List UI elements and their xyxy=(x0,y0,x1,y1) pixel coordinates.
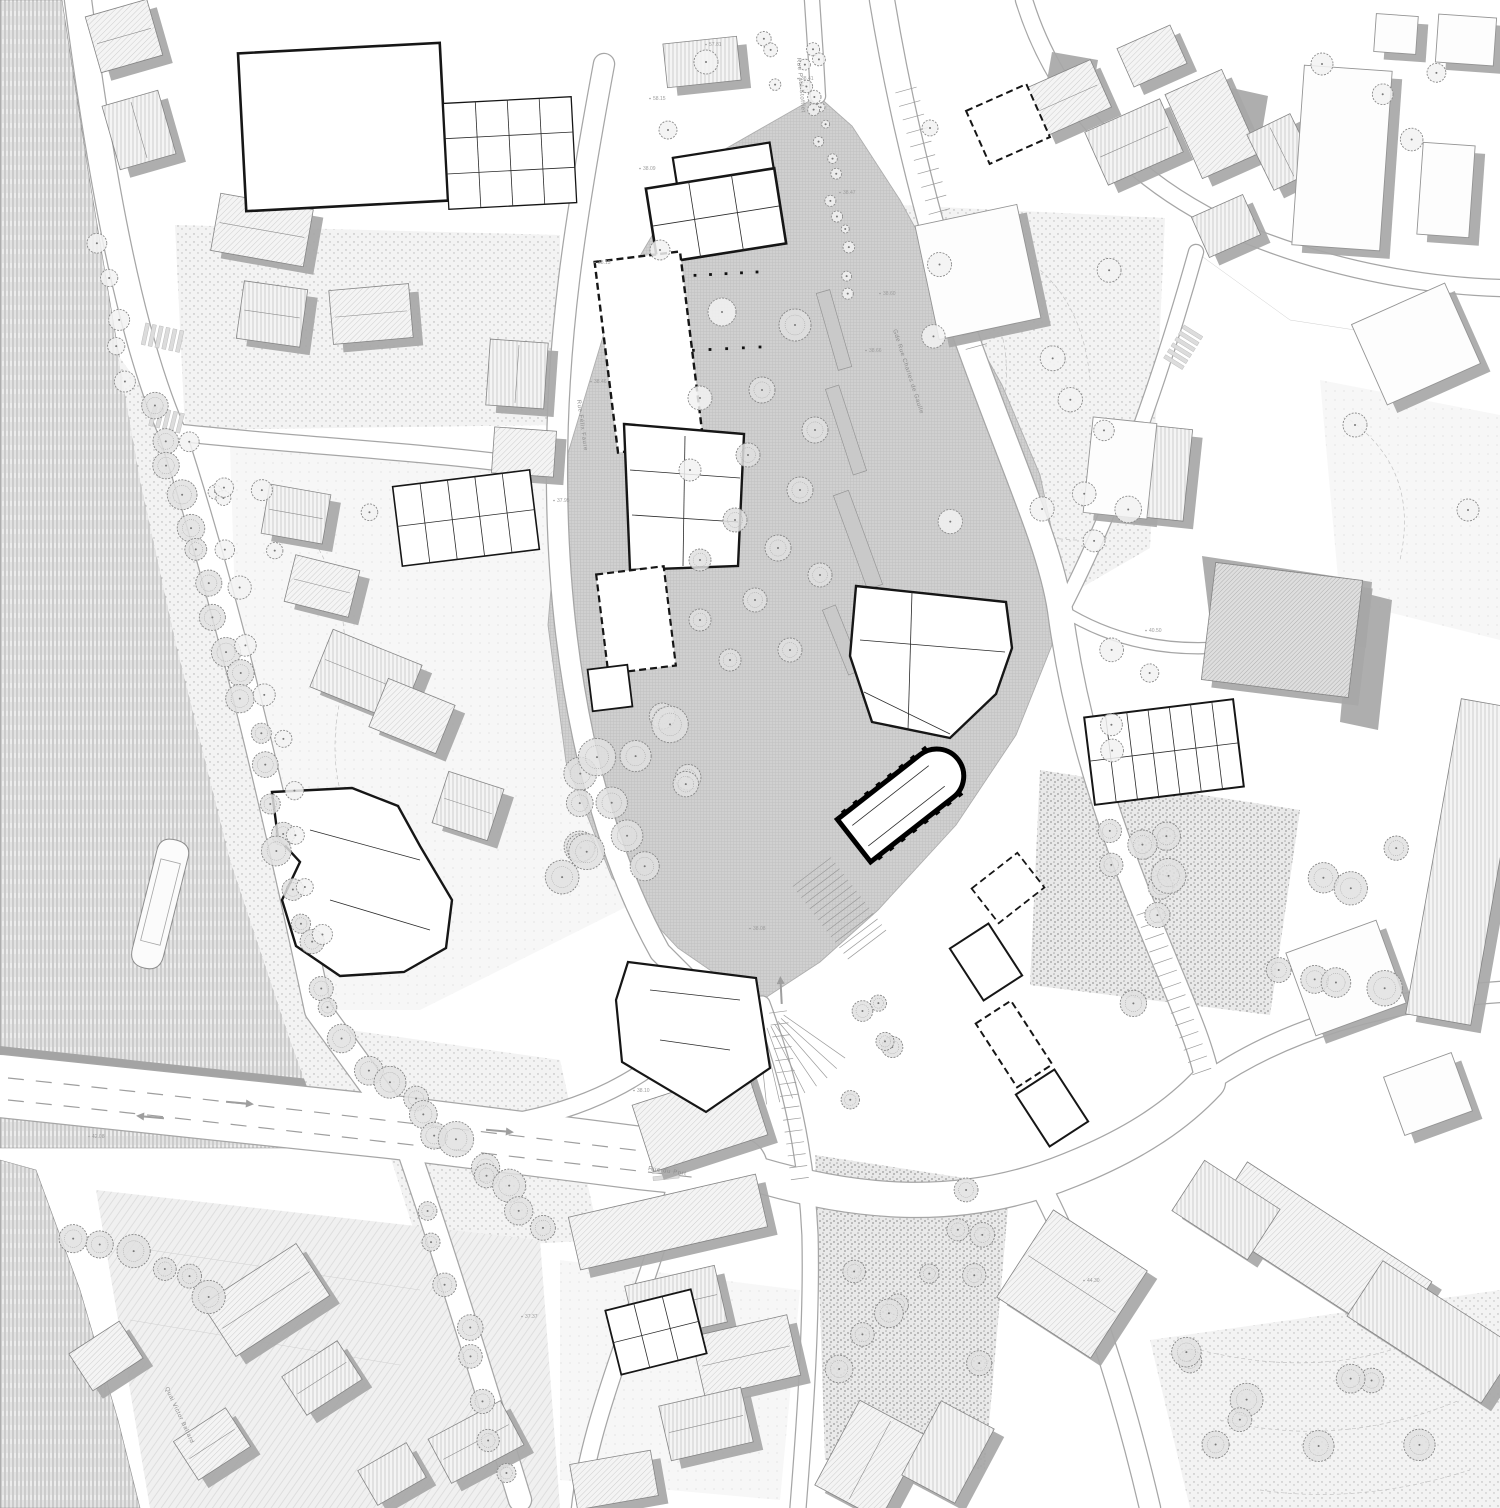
tree-trunk xyxy=(1418,1444,1420,1446)
tree-trunk xyxy=(838,1368,840,1370)
tree-trunk xyxy=(932,335,934,337)
project-building-plan xyxy=(596,566,676,674)
column-dot xyxy=(742,346,745,349)
tree-trunk xyxy=(224,549,226,551)
spot-elevation-point xyxy=(633,1090,635,1092)
tree-trunk xyxy=(820,106,822,108)
tree-trunk xyxy=(389,1081,391,1083)
tree xyxy=(673,771,698,796)
column-dot xyxy=(756,271,759,274)
tree-trunk xyxy=(269,803,271,805)
tree xyxy=(749,377,775,403)
tree xyxy=(1266,958,1291,983)
spot-elevation-point xyxy=(521,1316,523,1318)
tree-trunk xyxy=(518,1210,520,1212)
tree-trunk xyxy=(292,889,294,891)
tree-trunk xyxy=(368,511,370,513)
tree xyxy=(954,1178,978,1202)
tree-trunk xyxy=(721,311,723,313)
tree-trunk xyxy=(189,1275,191,1277)
tree-trunk xyxy=(1278,969,1280,971)
tree xyxy=(361,504,378,521)
context-building xyxy=(1201,562,1362,697)
tree-trunk xyxy=(794,324,796,326)
tree xyxy=(179,432,199,452)
tree xyxy=(679,459,701,481)
tree xyxy=(199,604,225,630)
tree-trunk xyxy=(1321,63,1323,65)
column-dot xyxy=(694,274,697,277)
tree-trunk xyxy=(1111,749,1113,751)
tree xyxy=(736,443,760,467)
tree-trunk xyxy=(819,574,821,576)
tree-trunk xyxy=(341,1038,343,1040)
tree-trunk xyxy=(1322,877,1324,879)
tree xyxy=(1115,496,1142,523)
tree-trunk xyxy=(689,469,691,471)
tree-trunk xyxy=(188,441,190,443)
tree xyxy=(652,706,688,742)
tree-trunk xyxy=(799,489,801,491)
tree-trunk xyxy=(154,405,156,407)
tree xyxy=(596,787,627,818)
tree-trunk xyxy=(481,1400,483,1402)
tree-trunk xyxy=(965,1189,967,1191)
tree-trunk xyxy=(164,1268,166,1270)
tree xyxy=(260,794,280,814)
spot-elevation-point xyxy=(639,168,641,170)
tree xyxy=(566,790,593,817)
tree xyxy=(153,429,179,455)
tree xyxy=(545,860,579,894)
tree-trunk xyxy=(699,397,701,399)
tree-trunk xyxy=(1165,835,1167,837)
tree xyxy=(177,514,205,542)
spot-elevation-label: 38.46 xyxy=(594,379,607,385)
tree-trunk xyxy=(1108,269,1110,271)
tree xyxy=(688,386,712,410)
tree-trunk xyxy=(1395,847,1397,849)
spot-elevation-label: 38.09 xyxy=(643,166,656,172)
tree-trunk xyxy=(433,1135,435,1137)
tree xyxy=(947,1219,969,1241)
column-dot xyxy=(740,271,743,274)
tree-trunk xyxy=(705,61,707,63)
tree-trunk xyxy=(877,1002,879,1004)
site-plan-page: Rue Paul StoffletRue Félix FaureGde Rue … xyxy=(0,0,1500,1508)
tree-trunk xyxy=(1141,844,1143,846)
tree-trunk xyxy=(282,738,284,740)
tree xyxy=(114,371,135,392)
tree-trunk xyxy=(939,264,941,266)
tree-trunk xyxy=(774,84,776,86)
tree-trunk xyxy=(611,802,613,804)
tree-trunk xyxy=(427,1210,429,1212)
tree-trunk xyxy=(1384,987,1386,989)
spot-elevation-point xyxy=(879,293,881,295)
tree-trunk xyxy=(486,1175,488,1177)
tree-trunk xyxy=(1318,1445,1320,1447)
spot-elevation-label: 38.08 xyxy=(753,926,766,932)
tree-trunk xyxy=(96,242,98,244)
spot-elevation-point xyxy=(797,78,799,80)
tree xyxy=(1343,413,1367,437)
tree xyxy=(252,752,278,778)
spot-elevation-point xyxy=(649,98,651,100)
tree xyxy=(228,576,251,599)
tree-trunk xyxy=(973,1274,975,1276)
tree-trunk xyxy=(754,599,756,601)
tree-trunk xyxy=(260,732,262,734)
tree xyxy=(251,480,272,501)
tree-trunk xyxy=(1239,1419,1241,1421)
tree xyxy=(1372,84,1393,105)
tree-trunk xyxy=(1110,724,1112,726)
tree xyxy=(689,549,711,571)
tree-trunk xyxy=(368,1070,370,1072)
tree xyxy=(470,1389,494,1413)
tree-trunk xyxy=(644,865,646,867)
tree-trunk xyxy=(1350,887,1352,889)
column-dot xyxy=(759,346,762,349)
tree-trunk xyxy=(1350,1378,1352,1380)
project-building-plan xyxy=(588,665,633,712)
tree-trunk xyxy=(861,1010,863,1012)
tree xyxy=(1145,903,1170,928)
tree-trunk xyxy=(928,1273,930,1275)
tree-trunk xyxy=(848,246,850,248)
tree-trunk xyxy=(770,49,772,51)
tree-trunk xyxy=(1335,982,1337,984)
tree-trunk xyxy=(835,173,837,175)
tree xyxy=(1100,638,1124,662)
tree-trunk xyxy=(1246,1399,1248,1401)
tree xyxy=(318,998,337,1017)
tree xyxy=(825,195,836,206)
tree xyxy=(828,154,838,164)
tree-trunk xyxy=(836,216,838,218)
tree-trunk xyxy=(844,228,846,230)
tree-trunk xyxy=(699,619,701,621)
tree-trunk xyxy=(1156,914,1158,916)
tree xyxy=(1058,388,1082,412)
tree-trunk xyxy=(805,86,807,88)
tree xyxy=(185,538,207,560)
tree xyxy=(743,588,767,612)
tree xyxy=(922,325,945,348)
tree-trunk xyxy=(1411,139,1413,141)
tree xyxy=(825,1355,853,1383)
tree-trunk xyxy=(1371,1380,1373,1382)
tree-trunk xyxy=(729,659,731,661)
tree-trunk xyxy=(1111,649,1113,651)
spot-elevation-point xyxy=(839,192,841,194)
spot-elevation-label: 58.15 xyxy=(653,96,666,102)
tree xyxy=(831,211,842,222)
tree-trunk xyxy=(635,755,637,757)
tree-trunk xyxy=(1110,864,1112,866)
tree xyxy=(920,1264,939,1283)
tree-trunk xyxy=(884,1040,886,1042)
tree xyxy=(1384,836,1408,860)
tree-trunk xyxy=(487,1439,489,1441)
tree xyxy=(1141,664,1159,682)
tree-trunk xyxy=(949,521,951,523)
tree-trunk xyxy=(1149,672,1151,674)
tree xyxy=(1308,863,1338,893)
tree xyxy=(611,820,643,852)
tree-trunk xyxy=(1109,830,1111,832)
spot-elevation-point xyxy=(749,928,751,930)
tree-trunk xyxy=(115,345,117,347)
column-dot xyxy=(725,272,728,275)
tree xyxy=(852,1001,873,1022)
tree-trunk xyxy=(72,1238,74,1240)
tree-trunk xyxy=(981,1234,983,1236)
spot-elevation-point xyxy=(705,44,707,46)
tree-trunk xyxy=(311,941,313,943)
tree-trunk xyxy=(812,48,814,50)
tree xyxy=(813,136,823,146)
spot-elevation-point xyxy=(1083,1280,1085,1282)
tree xyxy=(1100,853,1123,876)
tree xyxy=(142,392,169,419)
tree-trunk xyxy=(929,127,931,129)
flat-roof-building xyxy=(1417,142,1475,237)
tree-trunk xyxy=(832,158,834,160)
tree xyxy=(1404,1429,1435,1460)
tree xyxy=(812,53,825,66)
tree-trunk xyxy=(1435,72,1437,74)
tree-trunk xyxy=(294,834,296,836)
tree xyxy=(1336,1364,1365,1393)
tree-trunk xyxy=(1069,399,1071,401)
column-dot xyxy=(709,273,712,276)
spot-elevation-label: 38.41 xyxy=(801,76,814,82)
tree-trunk xyxy=(846,275,848,277)
tree-trunk xyxy=(978,1362,980,1364)
tree-trunk xyxy=(244,644,246,646)
arrow-shaft xyxy=(781,984,782,1004)
tree-trunk xyxy=(853,1270,855,1272)
tree-trunk xyxy=(190,527,192,529)
tree-trunk xyxy=(818,141,820,143)
tree-trunk xyxy=(1467,509,1469,511)
tree-trunk xyxy=(1215,1444,1217,1446)
tree-trunk xyxy=(734,519,736,521)
tree-trunk xyxy=(469,1327,471,1329)
tree-trunk xyxy=(596,756,598,758)
spot-elevation-label: 38.13 xyxy=(598,260,611,266)
tree xyxy=(457,1315,483,1341)
tree xyxy=(167,480,197,510)
tree xyxy=(875,1299,904,1328)
tree xyxy=(1311,53,1333,75)
tree-trunk xyxy=(320,988,322,990)
tree-trunk xyxy=(469,1355,471,1357)
tree-trunk xyxy=(118,319,120,321)
tree xyxy=(650,240,670,260)
tree xyxy=(1427,63,1446,82)
spot-elevation-point xyxy=(1145,630,1147,632)
tree xyxy=(938,509,962,533)
tree xyxy=(327,1024,356,1053)
spot-elevation-label: 44.30 xyxy=(1087,1278,1100,1284)
tree xyxy=(1072,482,1096,506)
tree xyxy=(779,309,811,341)
tree-trunk xyxy=(667,129,669,131)
tree-trunk xyxy=(1314,978,1316,980)
tree-trunk xyxy=(211,616,213,618)
tree-trunk xyxy=(455,1138,457,1140)
tree xyxy=(438,1122,473,1157)
tree xyxy=(214,478,233,497)
flat-roof-building xyxy=(1435,14,1496,66)
tree-trunk xyxy=(208,1296,210,1298)
site-plan-map: Rue Paul StoffletRue Félix FaureGde Rue … xyxy=(0,0,1500,1508)
tree-trunk xyxy=(225,651,227,653)
tree xyxy=(374,1066,406,1098)
tree xyxy=(459,1345,483,1369)
tree xyxy=(967,1351,992,1376)
tree xyxy=(769,79,781,91)
tree xyxy=(876,1032,894,1050)
tree-trunk xyxy=(282,833,284,835)
tree xyxy=(59,1225,87,1253)
spot-elevation-label: 38.60 xyxy=(883,291,896,297)
tree xyxy=(620,741,651,772)
tree xyxy=(970,1223,995,1248)
tree-trunk xyxy=(685,783,687,785)
tree-trunk xyxy=(165,465,167,467)
tree xyxy=(1101,739,1124,762)
spot-elevation-label: 40.50 xyxy=(1149,628,1162,634)
tree xyxy=(153,452,180,479)
tree xyxy=(215,540,235,560)
tree-trunk xyxy=(1185,1351,1187,1353)
tree xyxy=(1172,1337,1202,1367)
tree-trunk xyxy=(813,109,815,111)
tree xyxy=(1040,346,1065,371)
tree xyxy=(1097,258,1121,282)
tree-trunk xyxy=(777,547,779,549)
tree xyxy=(630,852,659,881)
context-building xyxy=(491,427,556,477)
tree xyxy=(86,1231,113,1258)
tree-trunk xyxy=(274,550,276,552)
tree xyxy=(108,338,125,355)
tree xyxy=(1334,872,1367,905)
tree xyxy=(1367,971,1402,1006)
tree xyxy=(802,417,828,443)
spot-elevation-label: 38.10 xyxy=(637,1088,650,1094)
tree xyxy=(87,233,107,253)
tree xyxy=(841,1091,859,1109)
tree xyxy=(196,570,222,596)
column-dot xyxy=(725,347,728,350)
tree xyxy=(1151,858,1186,893)
tree-trunk xyxy=(1132,1002,1134,1004)
spot-elevation-point xyxy=(88,1136,90,1138)
tree xyxy=(928,253,952,277)
tree-trunk xyxy=(275,850,277,852)
spot-elevation-point xyxy=(865,350,867,352)
tree-trunk xyxy=(626,835,628,837)
tree xyxy=(1030,497,1054,521)
tree-trunk xyxy=(208,582,210,584)
tree-trunk xyxy=(108,277,110,279)
tree-trunk xyxy=(814,429,816,431)
tree-trunk xyxy=(239,698,241,700)
tree-trunk xyxy=(1168,875,1170,877)
tree xyxy=(808,563,832,587)
tree xyxy=(963,1264,986,1287)
tree-trunk xyxy=(165,440,167,442)
tree-trunk xyxy=(699,559,701,561)
tree xyxy=(286,826,304,844)
spot-elevation-label: 37.95 xyxy=(557,498,570,504)
tree xyxy=(1100,714,1122,736)
tree xyxy=(843,1260,866,1283)
tree-trunk xyxy=(239,587,241,589)
tree xyxy=(1228,1408,1252,1432)
tree-trunk xyxy=(1052,357,1054,359)
tree xyxy=(422,1233,440,1251)
tree xyxy=(235,635,256,656)
tree-trunk xyxy=(444,1284,446,1286)
tree-trunk xyxy=(181,494,183,496)
tree xyxy=(153,1258,176,1281)
tree xyxy=(418,1202,437,1221)
tree-trunk xyxy=(505,1472,507,1474)
tree-trunk xyxy=(1354,424,1356,426)
project-building-plan xyxy=(238,43,448,211)
spot-elevation-point xyxy=(594,262,596,264)
tree-trunk xyxy=(1103,429,1105,431)
tree xyxy=(1202,1431,1229,1458)
tree xyxy=(227,660,254,687)
tree-trunk xyxy=(124,381,126,383)
tree-trunk xyxy=(240,672,242,674)
tree xyxy=(708,298,736,326)
tree-trunk xyxy=(99,1243,101,1245)
tree xyxy=(569,834,605,870)
tree-trunk xyxy=(542,1227,544,1229)
tree-trunk xyxy=(804,64,806,66)
tree xyxy=(870,995,886,1011)
tree xyxy=(842,271,852,281)
tree xyxy=(1120,990,1146,1016)
tree-trunk xyxy=(293,790,295,792)
tree-trunk xyxy=(761,389,763,391)
tree xyxy=(841,225,849,233)
tree xyxy=(1457,499,1479,521)
column-dot xyxy=(692,349,695,352)
tree-trunk xyxy=(1083,493,1085,495)
tree xyxy=(296,879,313,896)
tree-trunk xyxy=(579,773,581,775)
tree-trunk xyxy=(415,1098,417,1100)
tree-trunk xyxy=(422,1113,424,1115)
tree-trunk xyxy=(669,723,671,725)
tree-trunk xyxy=(195,548,197,550)
tree xyxy=(787,477,813,503)
tree-trunk xyxy=(300,923,302,925)
tree-trunk xyxy=(847,293,849,295)
tree xyxy=(822,120,830,128)
tree xyxy=(251,723,271,743)
tree xyxy=(1098,819,1121,842)
